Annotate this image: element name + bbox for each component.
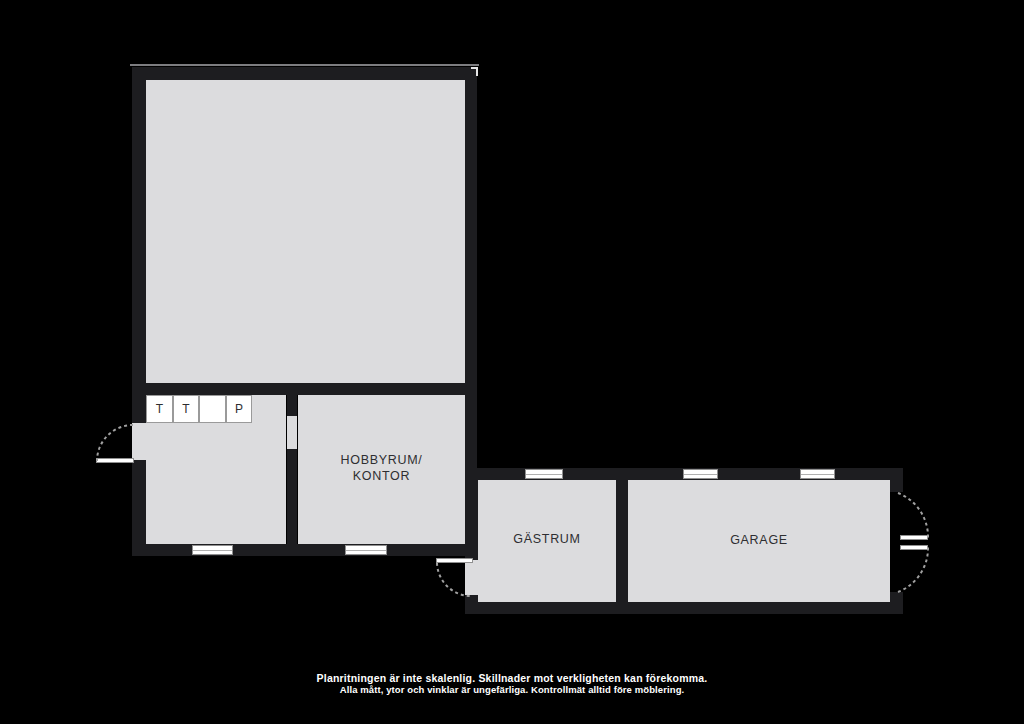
window-garage-left-icon [683,469,718,479]
room-label-gastrum: GÄSTRUM [478,531,616,547]
disclaimer-line-2: Alla mått, ytor och vinklar är ungefärli… [0,684,1024,695]
door-opening-gastrum [465,560,478,595]
door-leaf-entry-icon [96,458,134,463]
floor-plan-canvas: T T P HOBBYRUM/ KONTOR GÄSTRUM GARAGE Pl… [0,0,1024,724]
corner-tick-vertical [476,67,478,76]
door-leaf-garage-bottom-icon [900,545,928,550]
wall-main-bottom [132,544,478,556]
room-label-hobbyrum: HOBBYRUM/ KONTOR [298,452,465,485]
closet-box-1: T [146,395,173,423]
wall-main-top [132,67,477,80]
wall-wing-right-upper [890,468,903,492]
closet-label-2: T [182,402,189,416]
wall-wing-bottom [465,602,903,614]
room-label-garage: GARAGE [628,532,890,548]
door-leaf-gastrum-icon [436,558,473,563]
door-arc-entry-icon [97,425,133,461]
wall-main-left [132,67,146,556]
window-gastrum-icon [525,469,563,479]
wall-interior-horizontal [146,383,465,395]
door-leaf-garage-top-icon [900,535,928,540]
disclaimer-line-1: Planritningen är inte skalenlig. Skillna… [0,672,1024,684]
window-hobbyrum-icon [345,545,387,555]
window-hall-icon [192,545,233,555]
room-label-hobbyrum-line1: HOBBYRUM/ [298,452,465,468]
room-floor-large-room [146,80,465,383]
window-garage-right-icon [800,469,835,479]
door-opening-entry [132,423,146,460]
door-arc-garage-bottom-icon [898,547,928,592]
door-opening-hall-hobbyrum [287,416,297,449]
exterior-outline-top [130,64,479,66]
closet-box-4: P [226,395,252,423]
disclaimer-text: Planritningen är inte skalenlig. Skillna… [0,672,1024,695]
closet-label-4: P [235,402,243,416]
closet-box-3 [199,395,226,423]
wall-wing-right-lower [890,592,903,614]
room-label-hobbyrum-line2: KONTOR [298,468,465,484]
door-arc-garage-top-icon [898,493,928,538]
wall-gastrum-garage-divider [616,480,628,602]
closet-box-2: T [173,395,199,423]
closet-label-1: T [156,402,163,416]
